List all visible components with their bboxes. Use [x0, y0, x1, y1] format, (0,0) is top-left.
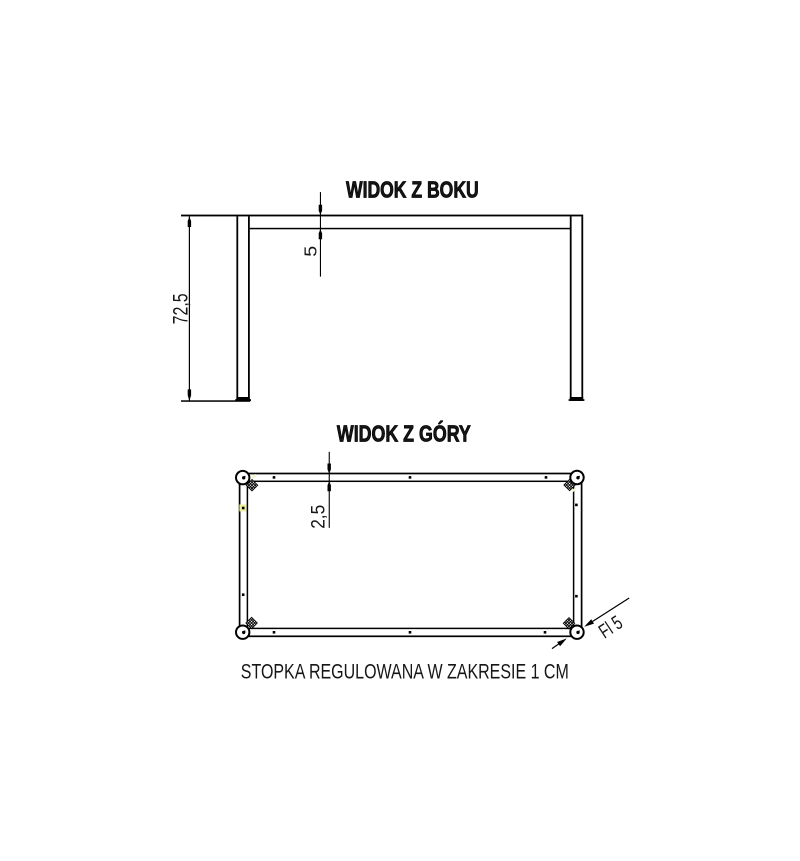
svg-text:5: 5 — [301, 246, 321, 257]
svg-text:72,5: 72,5 — [170, 293, 193, 324]
svg-text:STOPKA REGULOWANA W ZAKRESIE 1: STOPKA REGULOWANA W ZAKRESIE 1 CM — [241, 661, 569, 684]
svg-text:WIDOK Z BOKU: WIDOK Z BOKU — [346, 177, 479, 203]
svg-text:WIDOK Z GÓRY: WIDOK Z GÓRY — [337, 419, 471, 446]
svg-text:2,5: 2,5 — [309, 505, 330, 529]
